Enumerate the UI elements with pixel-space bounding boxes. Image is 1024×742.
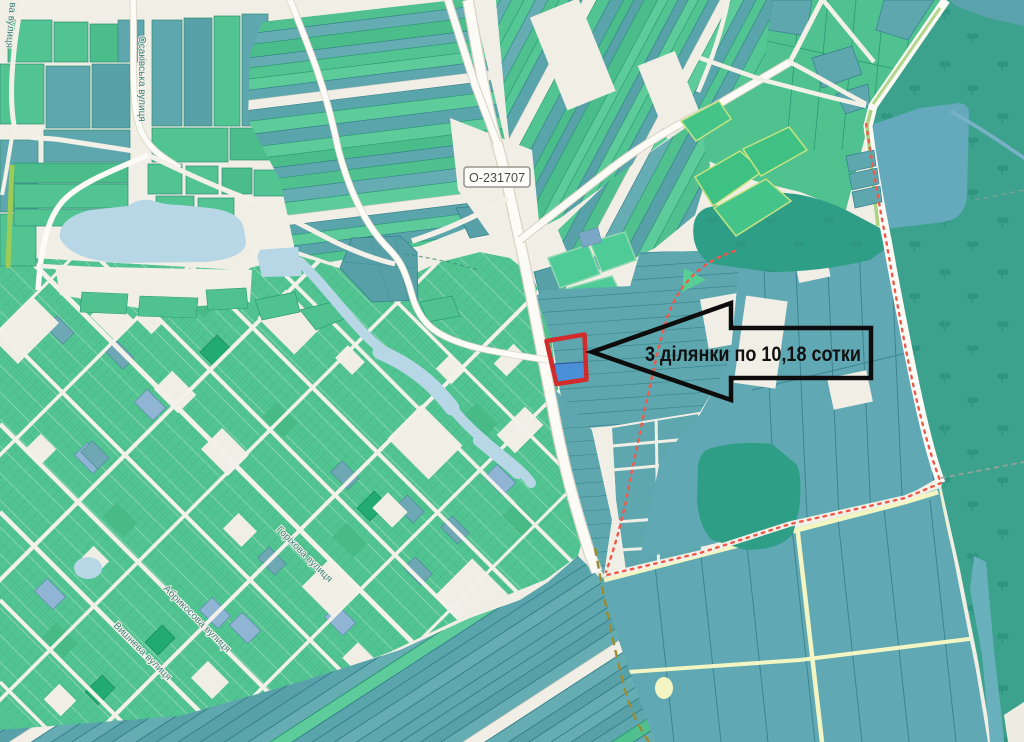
svg-text:Осаківська вулиця: Осаківська вулиця [136, 36, 147, 122]
svg-text:О-231707: О-231707 [469, 170, 525, 185]
svg-text:3 ділянки по 10,18 сотки: 3 ділянки по 10,18 сотки [645, 343, 861, 366]
